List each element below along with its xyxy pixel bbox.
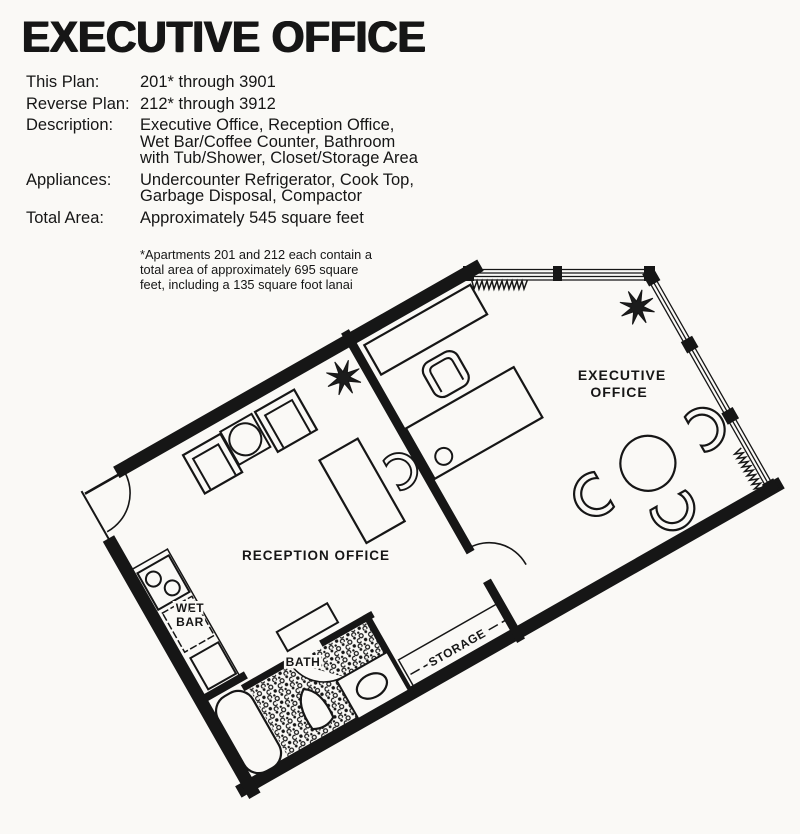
armchair-inner	[193, 444, 235, 488]
drape-icon	[734, 448, 765, 495]
reception-furniture	[177, 356, 465, 652]
desk-chair	[419, 347, 472, 400]
exterior-walls	[77, 192, 779, 793]
drape-icon	[472, 281, 527, 289]
side-table-top	[223, 417, 267, 461]
executive-office-label: EXECUTIVE	[578, 367, 666, 383]
cooktop-burner	[162, 578, 182, 598]
bath-label: BATH	[286, 655, 321, 669]
window-mullion	[463, 266, 474, 281]
round-table	[610, 426, 685, 501]
shell-chair	[566, 470, 615, 524]
cooktop-burner	[143, 569, 163, 589]
window-mullion	[681, 336, 699, 354]
desk-chair-inner	[428, 356, 463, 391]
window-mullion	[553, 266, 562, 281]
side-table	[220, 414, 270, 465]
office-door-arc	[468, 527, 525, 584]
wet-bar-label: WET	[176, 601, 205, 615]
executive-desk	[406, 367, 542, 479]
window-mullion	[644, 266, 655, 281]
armchair	[255, 390, 317, 452]
executive-office-label: OFFICE	[590, 384, 647, 400]
armchair	[183, 434, 242, 494]
reception-office-label: RECEPTION OFFICE	[242, 548, 390, 563]
window-wall-top	[463, 266, 655, 289]
floor-plan: STORAGE	[0, 0, 800, 834]
wet-bar-label: BAR	[176, 615, 204, 629]
entry-door	[82, 469, 153, 544]
